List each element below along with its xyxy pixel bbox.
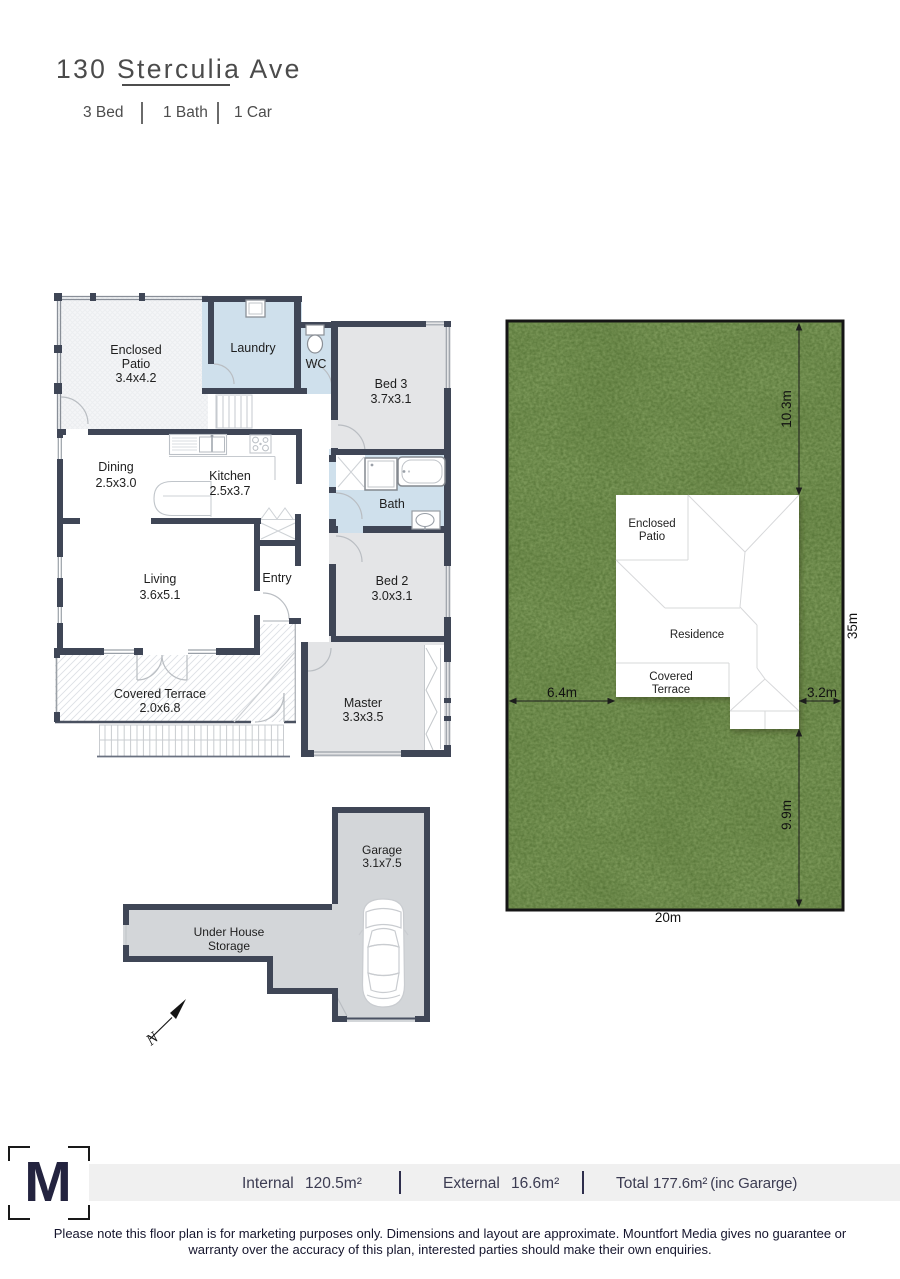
- svg-text:9.9m: 9.9m: [779, 800, 794, 830]
- svg-text:3.1x7.5: 3.1x7.5: [362, 856, 402, 870]
- svg-text:3.0x3.1: 3.0x3.1: [371, 589, 412, 603]
- svg-text:Bath: Bath: [379, 497, 405, 511]
- svg-text:Terrace: Terrace: [652, 684, 690, 696]
- svg-text:3.4x4.2: 3.4x4.2: [115, 371, 156, 385]
- svg-text:Garage: Garage: [362, 843, 402, 857]
- svg-text:Entry: Entry: [262, 571, 292, 585]
- svg-text:Dining: Dining: [98, 460, 133, 474]
- svg-text:Storage: Storage: [208, 939, 250, 953]
- svg-text:Enclosed: Enclosed: [110, 343, 161, 357]
- svg-text:Laundry: Laundry: [230, 341, 276, 355]
- svg-text:3.2m: 3.2m: [807, 685, 837, 700]
- svg-text:Master: Master: [344, 696, 382, 710]
- svg-text:3.3x3.5: 3.3x3.5: [342, 710, 383, 724]
- svg-text:35m: 35m: [845, 613, 860, 639]
- svg-text:3.7x3.1: 3.7x3.1: [370, 392, 411, 406]
- svg-text:Patio: Patio: [639, 531, 665, 543]
- svg-text:Residence: Residence: [670, 629, 724, 641]
- svg-text:Bed 2: Bed 2: [376, 574, 409, 588]
- svg-text:Enclosed: Enclosed: [628, 518, 675, 530]
- svg-text:Living: Living: [144, 572, 177, 586]
- svg-text:Bed 3: Bed 3: [375, 377, 408, 391]
- svg-text:10.3m: 10.3m: [779, 390, 794, 428]
- svg-text:Kitchen: Kitchen: [209, 469, 251, 483]
- svg-text:Under House: Under House: [194, 925, 265, 939]
- svg-text:2.0x6.8: 2.0x6.8: [139, 701, 180, 715]
- svg-text:20m: 20m: [655, 910, 681, 925]
- svg-text:Covered Terrace: Covered Terrace: [114, 687, 206, 701]
- svg-text:Patio: Patio: [122, 357, 151, 371]
- svg-text:2.5x3.7: 2.5x3.7: [209, 484, 250, 498]
- svg-text:Covered: Covered: [649, 671, 692, 683]
- svg-text:N: N: [142, 1028, 163, 1049]
- svg-text:6.4m: 6.4m: [547, 685, 577, 700]
- svg-text:2.5x3.0: 2.5x3.0: [95, 476, 136, 490]
- svg-text:WC: WC: [306, 357, 327, 371]
- svg-text:3.6x5.1: 3.6x5.1: [139, 588, 180, 602]
